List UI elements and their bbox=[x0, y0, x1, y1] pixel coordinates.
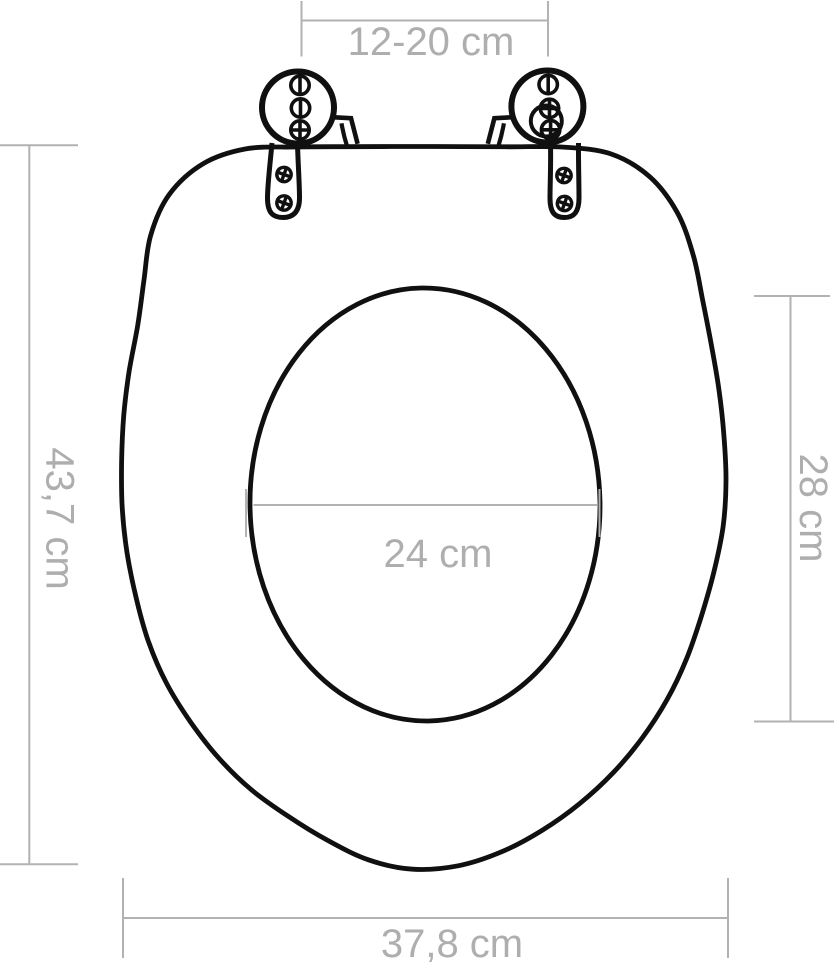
svg-text:28 cm: 28 cm bbox=[791, 454, 835, 563]
svg-text:24 cm: 24 cm bbox=[384, 532, 493, 576]
svg-text:37,8 cm: 37,8 cm bbox=[381, 922, 523, 966]
svg-text:12-20 cm: 12-20 cm bbox=[348, 20, 515, 64]
svg-text:43,7 cm: 43,7 cm bbox=[38, 447, 82, 589]
